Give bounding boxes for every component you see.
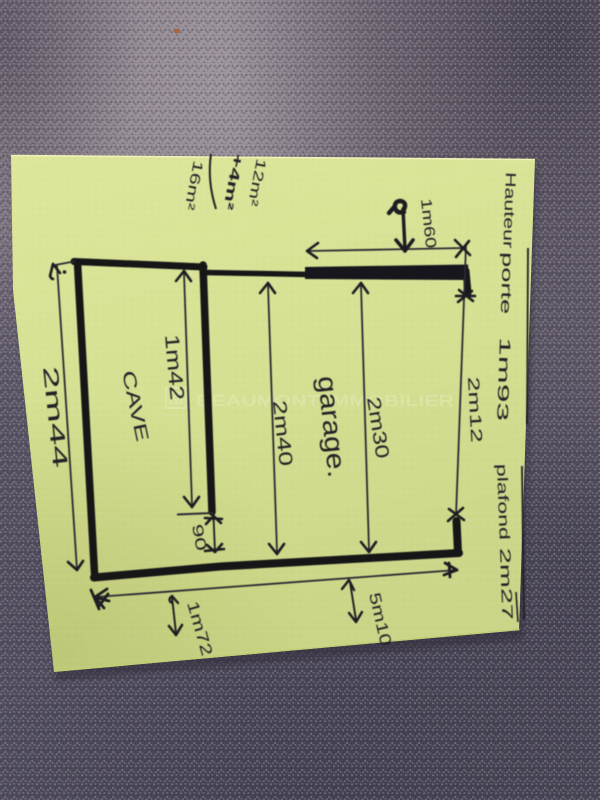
svg-text:1m93: 1m93	[493, 337, 513, 422]
svg-text:2m12: 2m12	[464, 376, 484, 443]
svg-text:porte: porte	[497, 252, 515, 315]
svg-text:Hauteur: Hauteur	[499, 172, 518, 249]
svg-text:plafond: plafond	[493, 464, 512, 541]
svg-text:2m27: 2m27	[496, 548, 516, 621]
